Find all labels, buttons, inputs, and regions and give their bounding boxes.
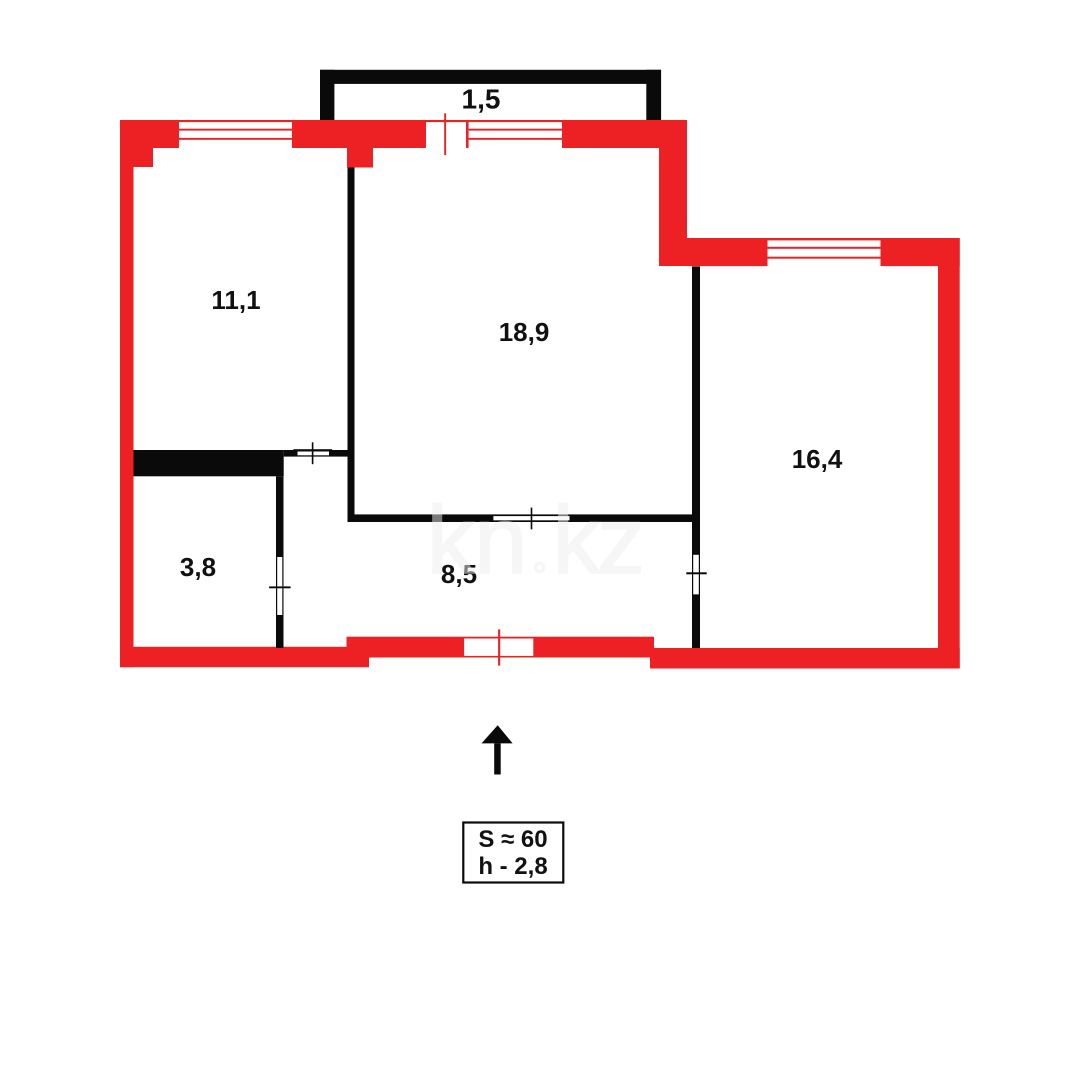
svg-text:18,9: 18,9	[499, 317, 550, 347]
svg-text:16,4: 16,4	[792, 444, 843, 474]
svg-text:1,5: 1,5	[462, 84, 501, 115]
svg-text:S ≈ 60: S ≈ 60	[478, 826, 547, 853]
svg-text:n: n	[474, 487, 527, 594]
svg-text:h - 2,8: h - 2,8	[478, 853, 547, 880]
svg-text:z: z	[597, 487, 645, 594]
svg-text:11,1: 11,1	[211, 285, 260, 315]
svg-text:k: k	[427, 487, 476, 594]
svg-text:3,8: 3,8	[180, 552, 216, 582]
svg-text:k: k	[553, 487, 602, 594]
